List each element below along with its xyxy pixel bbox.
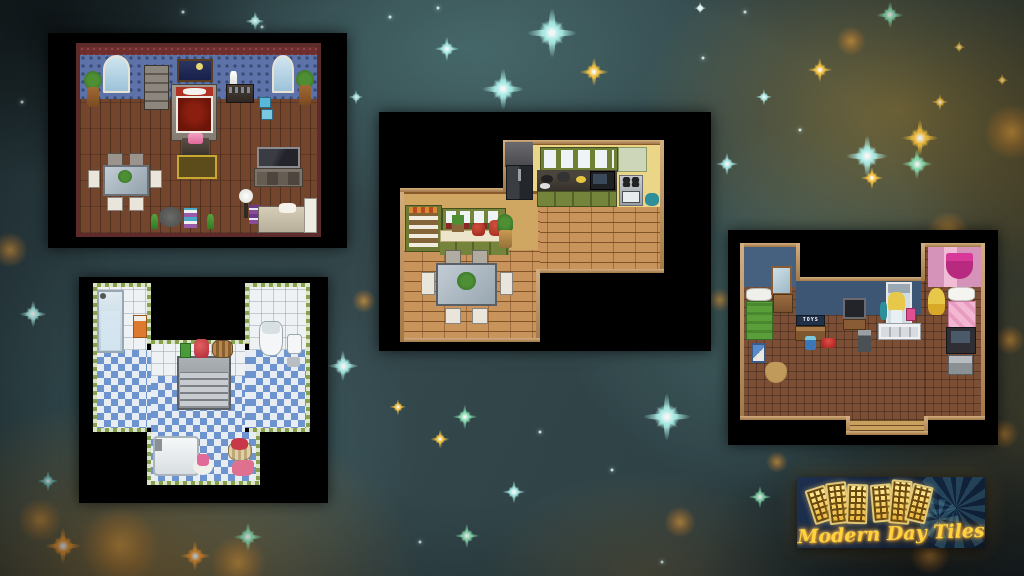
arched-window xyxy=(272,55,295,92)
star-sparkle xyxy=(902,120,938,156)
stove-burners xyxy=(622,177,641,187)
room-bedroom-living xyxy=(76,43,321,237)
gray-robot-toy xyxy=(858,330,871,352)
checker-trim xyxy=(249,283,310,287)
checker-floor xyxy=(147,350,151,429)
shelf-dishes xyxy=(409,212,438,247)
cabinet-panes xyxy=(544,150,614,168)
table-plant xyxy=(118,170,132,183)
star-sparkle xyxy=(180,541,210,571)
tiny-star xyxy=(389,16,392,19)
room-border xyxy=(536,269,540,342)
stereo-unit xyxy=(229,87,250,93)
star-sparkle xyxy=(644,394,690,440)
star-sparkle xyxy=(503,481,525,503)
star-sparkle xyxy=(246,12,264,30)
star-sparkle xyxy=(328,351,358,381)
computer-screen xyxy=(951,331,971,343)
bed-blanket xyxy=(176,96,213,133)
toys-sign: TOYS xyxy=(796,315,825,326)
shelf-rows xyxy=(180,372,228,406)
dresser-drawers xyxy=(881,327,918,338)
pink-clothes xyxy=(232,460,254,476)
dining-chair xyxy=(472,308,488,324)
room-border xyxy=(928,416,985,420)
checker-trim xyxy=(256,432,260,485)
room-border xyxy=(921,243,925,281)
green-bed-blanket xyxy=(746,301,773,340)
star-sparkle xyxy=(528,9,576,57)
room-kids-bedroom: TOYS xyxy=(740,243,985,435)
dining-chair xyxy=(500,272,513,295)
star-sparkle xyxy=(349,90,363,104)
tiny-star xyxy=(539,431,542,434)
tiny-star xyxy=(611,469,614,472)
star-sparkle xyxy=(932,94,948,110)
teddy-toy xyxy=(928,288,945,315)
pink-gift xyxy=(906,308,916,320)
screenshot-panel-kids-bedroom: TOYS xyxy=(728,230,998,445)
room-bathroom xyxy=(93,283,310,485)
star-sparkle xyxy=(45,528,81,564)
star-sparkle xyxy=(756,89,772,105)
star-sparkle xyxy=(694,2,706,14)
rocking-horse xyxy=(765,362,787,383)
red-clothes xyxy=(231,438,248,450)
yellow-rug xyxy=(177,155,217,179)
checker-trim xyxy=(147,283,151,344)
doorway-stairs xyxy=(850,420,924,431)
dining-chair xyxy=(88,170,100,189)
pouf xyxy=(159,207,182,227)
room-border xyxy=(400,188,507,192)
dining-chair xyxy=(129,153,144,166)
fridge-handle xyxy=(518,169,521,181)
checker-trim xyxy=(245,283,249,344)
doll-hair xyxy=(888,292,905,311)
tv-screen xyxy=(257,147,301,168)
orange-towel-rack xyxy=(133,315,147,337)
star-sparkle xyxy=(580,58,608,86)
shower-head xyxy=(100,293,107,299)
room-border xyxy=(400,188,404,342)
cabinet-drawers xyxy=(257,172,301,185)
sofa-arm xyxy=(304,198,317,233)
checker-trim xyxy=(147,432,151,485)
room-border xyxy=(796,277,925,281)
wicker-basket xyxy=(212,340,233,358)
teal-bottle xyxy=(880,302,887,320)
star-sparkle xyxy=(234,523,262,551)
pale-cabinet xyxy=(618,147,647,172)
tiny-star xyxy=(702,57,705,60)
wall-trim xyxy=(80,47,317,55)
screenshot-panel-bedroom-living xyxy=(48,33,347,248)
wall-mirror xyxy=(771,266,792,295)
room-border xyxy=(536,269,664,273)
tiny-star xyxy=(437,7,440,10)
checker-trim xyxy=(306,283,310,432)
star-sparkle xyxy=(483,69,523,109)
red-jar xyxy=(194,339,209,358)
small-dresser xyxy=(773,294,793,313)
printer xyxy=(948,355,973,374)
bed-pillow xyxy=(183,88,206,95)
counter-cabinet-front xyxy=(537,191,617,207)
pineapple-leaves xyxy=(497,214,513,230)
skyscraper-icon xyxy=(846,484,868,525)
shower-glass xyxy=(101,311,121,349)
star-sparkle xyxy=(435,37,459,61)
room-border xyxy=(981,243,985,420)
tub-faucet xyxy=(155,439,163,451)
pink-soap xyxy=(197,454,209,466)
tiny-star xyxy=(182,11,185,14)
room-border xyxy=(740,416,846,420)
checker-floor xyxy=(97,350,147,429)
room-border xyxy=(740,243,796,247)
tiny-star xyxy=(661,561,664,564)
star-sparkle xyxy=(749,486,771,508)
tiny-star xyxy=(21,101,24,104)
grass-plant xyxy=(207,214,214,229)
green-jar xyxy=(180,343,191,358)
tiny-star xyxy=(419,541,422,544)
checker-trim xyxy=(93,428,147,432)
microwave-window xyxy=(593,174,608,184)
scale xyxy=(287,357,300,367)
fridge-alcove xyxy=(505,142,533,167)
green-bed-pillow xyxy=(746,288,772,301)
plate xyxy=(540,183,551,188)
dining-chair xyxy=(445,308,461,324)
star-sparkle xyxy=(38,471,58,491)
teal-watering-can xyxy=(645,193,660,206)
room-border xyxy=(660,140,664,273)
room-border xyxy=(846,431,928,435)
room-kitchen xyxy=(400,136,666,342)
star-sparkle xyxy=(390,399,406,415)
bokeh-glow xyxy=(995,325,1024,355)
book-stack xyxy=(184,208,197,228)
plant-pot xyxy=(299,85,311,105)
arched-window xyxy=(103,55,130,92)
doll-body xyxy=(891,310,901,322)
bokeh-glow xyxy=(80,506,160,576)
bokeh-glow xyxy=(984,104,1024,160)
dining-chair xyxy=(107,153,122,166)
star-sparkle xyxy=(953,41,965,53)
star-sparkle xyxy=(431,430,449,448)
logo-banner: Modern Day Tiles xyxy=(797,477,985,548)
checker-floor xyxy=(245,350,249,429)
oven-door xyxy=(622,191,641,203)
dining-chair xyxy=(107,197,122,211)
floor-lamp-pole xyxy=(244,203,248,218)
room-border xyxy=(925,243,985,247)
room-border xyxy=(400,338,540,342)
tiny-star xyxy=(744,11,747,14)
red-toy-car xyxy=(821,338,836,348)
shelf-food xyxy=(409,207,438,213)
grass-plant xyxy=(151,214,158,229)
red-pot xyxy=(472,223,485,236)
bokeh-glow xyxy=(0,232,28,268)
bokeh-glow xyxy=(766,451,788,473)
hanging-dress xyxy=(946,253,973,279)
star-sparkle xyxy=(877,2,903,28)
dresser xyxy=(144,65,169,111)
bokeh-glow xyxy=(352,289,376,313)
bokeh-glow xyxy=(836,26,866,56)
blue-magazine xyxy=(261,109,273,120)
tiny-star xyxy=(799,129,802,132)
pineapple-pot xyxy=(499,230,512,249)
plant-pot xyxy=(87,87,99,107)
screenshot-panel-kitchen xyxy=(379,112,711,351)
toilet-lid xyxy=(262,322,279,334)
leaning-picture xyxy=(751,343,766,363)
star-sparkle xyxy=(20,301,46,327)
vase-plant xyxy=(452,215,464,231)
dining-chair xyxy=(421,272,434,295)
bokeh-glow xyxy=(664,506,696,538)
star-sparkle xyxy=(716,153,738,175)
star-sparkle xyxy=(453,405,477,429)
sofa-pillow xyxy=(279,203,296,212)
room-border xyxy=(796,243,800,281)
checker-trim xyxy=(147,481,260,485)
tv xyxy=(843,298,866,319)
screenshot-panel-bathroom xyxy=(79,277,328,503)
dining-chair xyxy=(150,170,162,189)
star-sparkle xyxy=(861,167,883,189)
sink xyxy=(287,334,302,354)
star-sparkle xyxy=(455,524,479,548)
night-painting xyxy=(177,59,213,82)
checker-trim xyxy=(93,283,147,287)
blue-robot-toy xyxy=(805,336,816,350)
pink-bed-pillow xyxy=(948,287,975,301)
blue-magazine xyxy=(259,97,271,108)
modern-day-tiles-promo-artwork: TOYS Modern Day Tiles xyxy=(0,0,1024,576)
tv-stand xyxy=(843,319,866,331)
star-sparkle xyxy=(808,58,832,82)
room-border xyxy=(740,243,744,420)
pink-cake xyxy=(188,133,203,144)
dining-chair xyxy=(129,197,144,211)
star-sparkle xyxy=(996,74,1008,86)
cooking-pot xyxy=(557,172,570,182)
